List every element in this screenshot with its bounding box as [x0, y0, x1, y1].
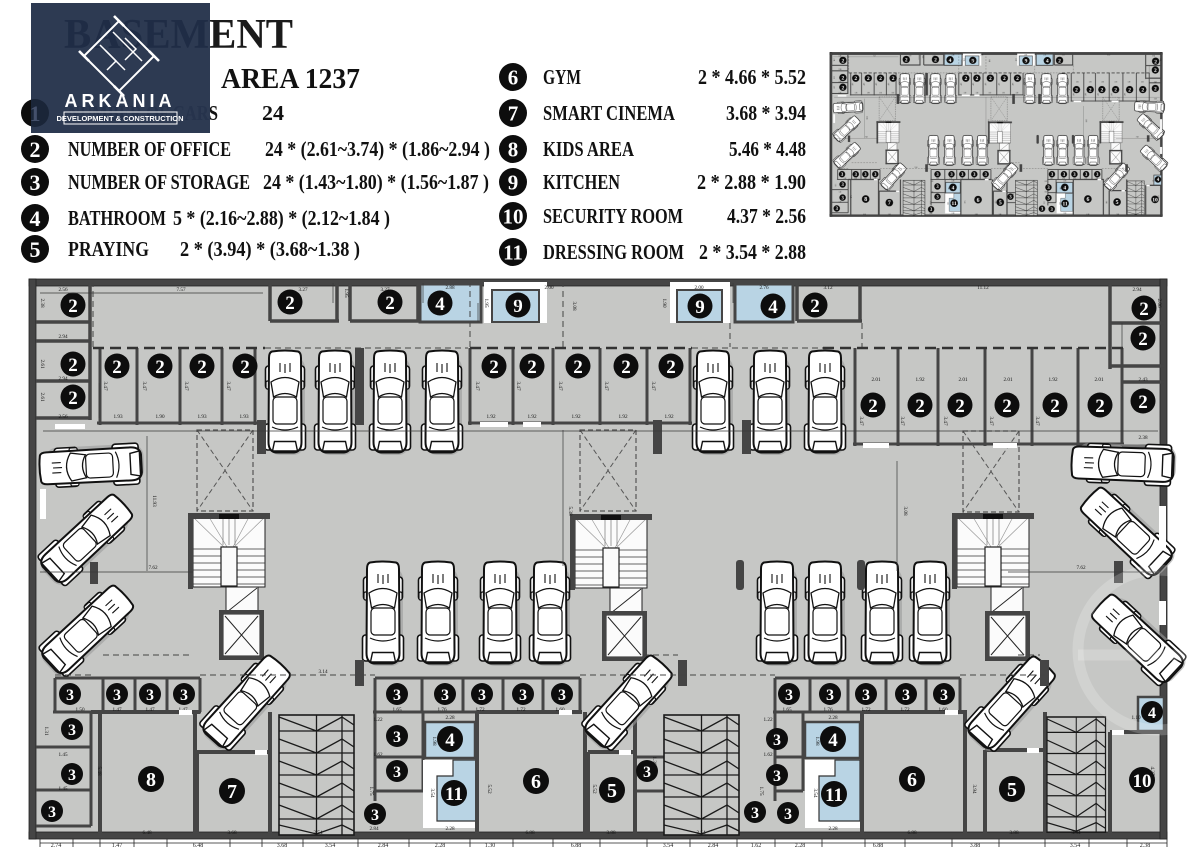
svg-text:3.54: 3.54 [325, 843, 336, 848]
svg-text:6.48: 6.48 [193, 843, 204, 848]
svg-text:SMART CINEMA: SMART CINEMA [543, 101, 676, 125]
svg-text:1.62: 1.62 [751, 843, 762, 848]
svg-text:6.88: 6.88 [571, 843, 582, 848]
svg-text:ARKANIA: ARKANIA [65, 91, 176, 111]
svg-text:3: 3 [30, 170, 41, 195]
svg-text:7: 7 [508, 102, 519, 126]
svg-text:2.28: 2.28 [795, 843, 806, 848]
svg-text:AREA 1237: AREA 1237 [221, 63, 360, 95]
svg-text:6: 6 [508, 66, 519, 90]
svg-text:9: 9 [508, 171, 519, 195]
svg-text:2 * 2.88 * 1.90: 2 * 2.88 * 1.90 [697, 170, 806, 194]
svg-text:2 * 4.66 * 5.52: 2 * 4.66 * 5.52 [698, 65, 806, 89]
svg-text:10: 10 [503, 205, 524, 229]
svg-text:DEVELOPMENT & CONSTRUCTION: DEVELOPMENT & CONSTRUCTION [56, 114, 183, 123]
svg-text:1.30: 1.30 [485, 843, 496, 848]
svg-text:1.47: 1.47 [112, 843, 123, 848]
svg-text:4.37 * 2.56: 4.37 * 2.56 [727, 204, 806, 228]
svg-text:3.54: 3.54 [1070, 843, 1081, 848]
svg-text:3.88: 3.88 [970, 843, 981, 848]
svg-text:GYM: GYM [543, 65, 581, 89]
svg-text:SECURITY ROOM: SECURITY ROOM [543, 204, 683, 228]
svg-text:11: 11 [503, 241, 523, 265]
svg-text:2 * 3.54 * 2.88: 2 * 3.54 * 2.88 [699, 240, 806, 264]
svg-text:2.28: 2.28 [435, 843, 446, 848]
svg-text:5: 5 [30, 237, 41, 262]
svg-text:2.38: 2.38 [1140, 843, 1151, 848]
svg-text:BATHROOM: BATHROOM [68, 206, 166, 230]
svg-text:NUMBER OF STORAGE: NUMBER OF STORAGE [68, 170, 250, 194]
svg-text:3.68: 3.68 [277, 843, 288, 848]
svg-text:3.68 * 3.94: 3.68 * 3.94 [726, 101, 806, 125]
svg-text:2.84: 2.84 [708, 843, 719, 848]
svg-text:8: 8 [508, 138, 519, 162]
svg-text:2.74: 2.74 [51, 843, 62, 848]
svg-text:NUMBER OF OFFICE: NUMBER OF OFFICE [68, 137, 231, 161]
svg-text:24 * (2.61~3.74) * (1.86~2.94: 24 * (2.61~3.74) * (1.86~2.94 ) [265, 137, 490, 161]
svg-text:1: 1 [30, 101, 41, 126]
svg-text:2 * (3.94) * (3.68~1.38 ): 2 * (3.94) * (3.68~1.38 ) [180, 237, 360, 261]
svg-text:3.54: 3.54 [663, 843, 674, 848]
svg-text:4: 4 [30, 206, 41, 231]
svg-text:2.84: 2.84 [378, 843, 389, 848]
svg-text:24 * (1.43~1.80) * (1.56~1.87: 24 * (1.43~1.80) * (1.56~1.87 ) [263, 170, 489, 194]
svg-text:KITCHEN: KITCHEN [543, 170, 620, 194]
svg-text:5 * (2.16~2.88) * (2.12~1.84 ): 5 * (2.16~2.88) * (2.12~1.84 ) [173, 206, 390, 230]
svg-text:24: 24 [262, 101, 285, 125]
svg-text:6.88: 6.88 [873, 843, 884, 848]
svg-text:DRESSING ROOM: DRESSING ROOM [543, 240, 684, 264]
svg-text:5.46 * 4.48: 5.46 * 4.48 [729, 137, 806, 161]
svg-text:PRAYING: PRAYING [68, 237, 149, 261]
svg-text:KIDS AREA: KIDS AREA [543, 137, 635, 161]
svg-text:2: 2 [30, 137, 41, 162]
